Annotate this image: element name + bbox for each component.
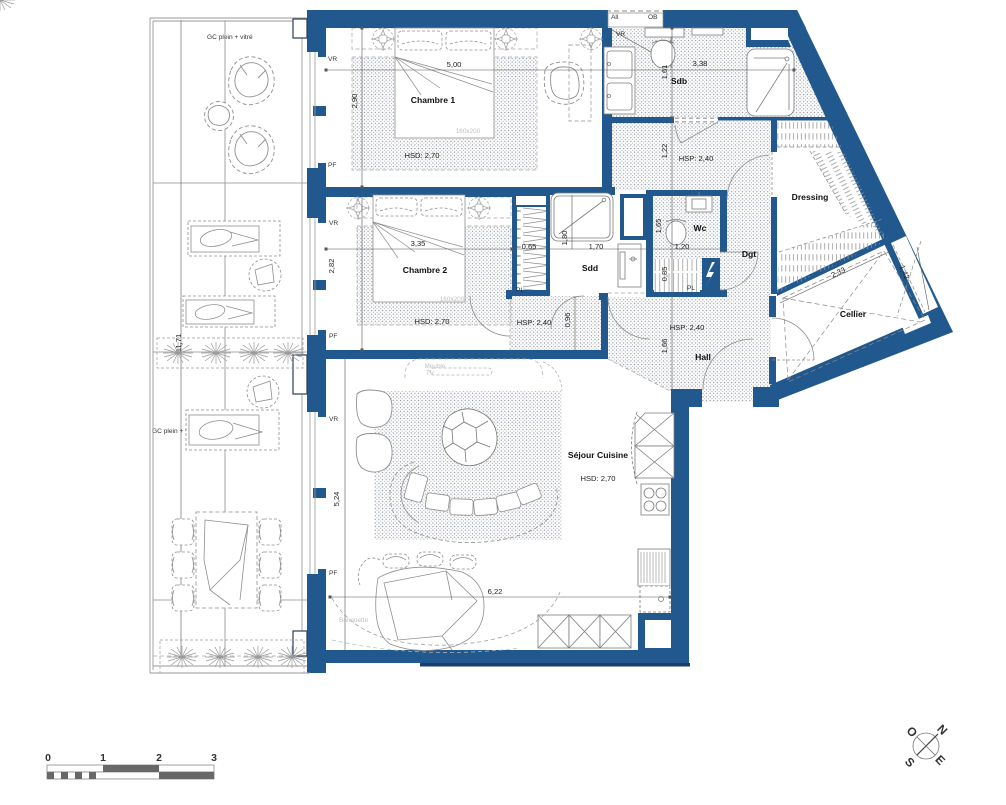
svg-text:PL: PL [516,287,524,294]
svg-text:0,85: 0,85 [660,267,669,282]
svg-text:Sdd: Sdd [582,263,598,273]
svg-text:OB: OB [648,14,658,21]
svg-text:Chambre 2: Chambre 2 [403,265,448,275]
svg-text:HSD: 2,70: HSD: 2,70 [580,474,615,483]
svg-text:1,65: 1,65 [654,219,663,234]
svg-text:5,00: 5,00 [447,60,462,69]
svg-text:All: All [611,14,619,21]
svg-text:HSP: 2,40: HSP: 2,40 [670,323,705,332]
svg-text:TV: TV [426,370,435,377]
svg-text:1,66: 1,66 [660,339,669,354]
svg-text:1,61: 1,61 [660,65,669,80]
svg-text:1: 1 [100,752,106,764]
svg-text:2: 2 [156,752,162,764]
svg-text:Wc: Wc [694,223,707,233]
svg-text:3,38: 3,38 [693,59,708,68]
svg-text:Banquette: Banquette [339,617,369,624]
svg-text:1,20: 1,20 [675,242,690,251]
svg-text:3,35: 3,35 [411,239,426,248]
svg-text:0: 0 [45,752,51,764]
svg-text:5,24: 5,24 [332,492,341,507]
svg-text:3: 3 [211,752,217,764]
svg-text:Chambre 1: Chambre 1 [411,95,456,105]
svg-text:6,22: 6,22 [488,587,503,596]
svg-text:PF: PF [329,570,337,577]
svg-text:VR: VR [329,220,338,227]
svg-text:HSP: 2,40: HSP: 2,40 [679,154,714,163]
svg-text:160x200: 160x200 [456,128,481,135]
svg-text:Sdb: Sdb [671,76,687,86]
svg-text:Cellier: Cellier [840,309,867,319]
svg-text:2,90: 2,90 [350,94,359,109]
svg-text:VR: VR [616,31,625,38]
svg-text:HSP: 2,40: HSP: 2,40 [517,318,552,327]
svg-text:Dressing: Dressing [792,192,829,202]
svg-text:1,80: 1,80 [560,231,569,246]
svg-text:GC plein + vitré: GC plein + vitré [207,34,253,41]
svg-text:0,96: 0,96 [563,313,572,328]
svg-text:0,65: 0,65 [522,242,537,251]
svg-text:PF: PF [328,162,336,169]
svg-text:PF: PF [329,333,337,340]
svg-text:1,70: 1,70 [589,242,604,251]
svg-text:VR: VR [328,56,337,63]
svg-text:Séjour Cuisine: Séjour Cuisine [568,450,628,460]
svg-text:11,71: 11,71 [174,334,183,352]
svg-text:Meuble: Meuble [425,363,446,370]
svg-text:160x200: 160x200 [440,296,465,303]
svg-text:2,82: 2,82 [327,259,336,274]
svg-text:VR: VR [329,416,338,423]
svg-text:1,22: 1,22 [660,144,669,159]
svg-text:HSD: 2,70: HSD: 2,70 [414,317,449,326]
svg-text:HSD: 2,70: HSD: 2,70 [404,151,439,160]
svg-text:PL: PL [687,285,695,292]
svg-text:Hall: Hall [695,352,711,362]
svg-text:Dgt: Dgt [742,249,756,259]
